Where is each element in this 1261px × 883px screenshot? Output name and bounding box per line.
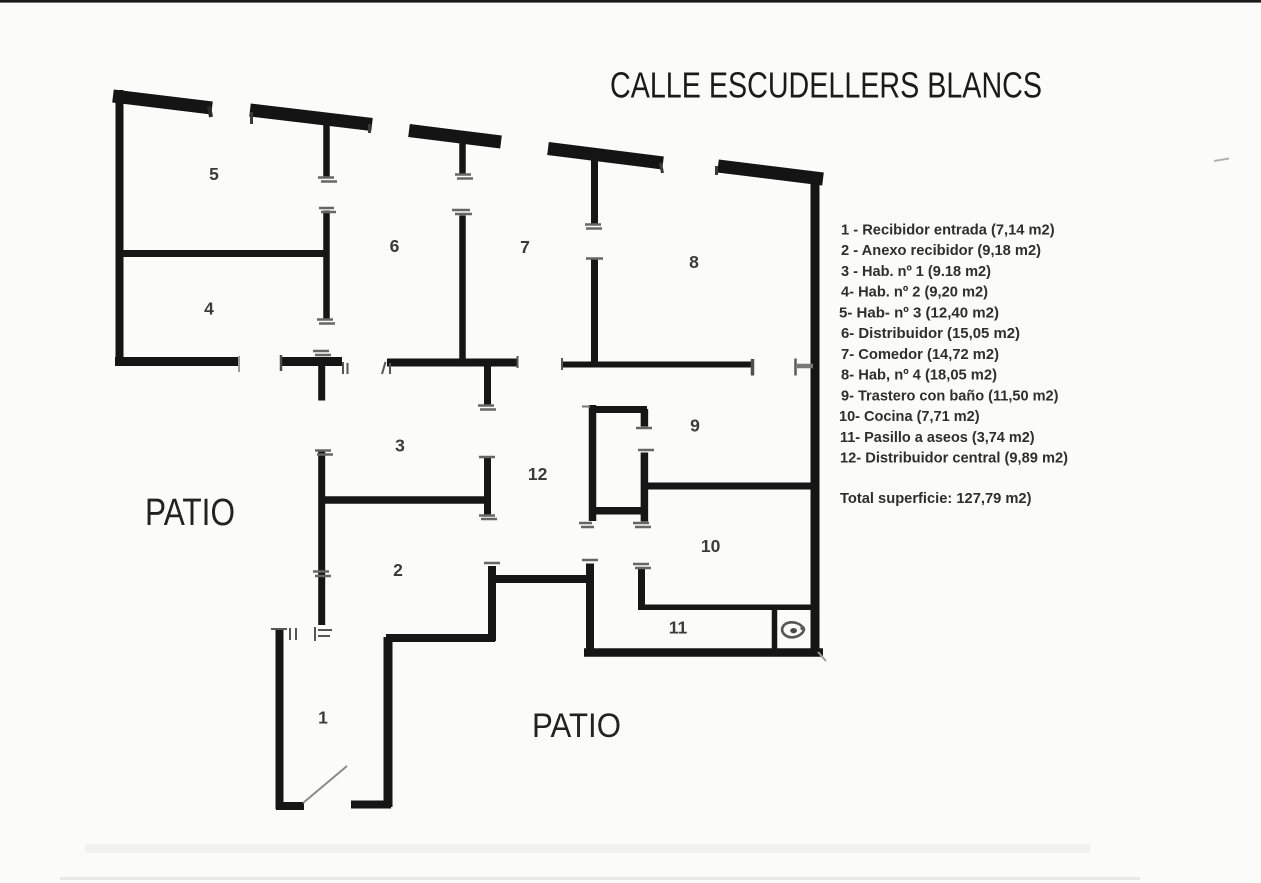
- svg-text:12- Distribuidor central (9,89: 12- Distribuidor central (9,89 m2): [840, 450, 1068, 467]
- svg-text:2 - Anexo recibidor (9,18 m2): 2 - Anexo recibidor (9,18 m2): [841, 242, 1041, 259]
- svg-text:1 - Recibidor entrada (7,14 m2: 1 - Recibidor entrada (7,14 m2): [841, 221, 1055, 238]
- svg-text:5: 5: [209, 164, 219, 184]
- svg-text:PATIO: PATIO: [532, 707, 621, 745]
- svg-text:6: 6: [390, 236, 400, 256]
- svg-text:CALLE ESCUDELLERS BLANCS: CALLE ESCUDELLERS BLANCS: [610, 65, 1042, 106]
- svg-text:4: 4: [204, 299, 214, 319]
- svg-text:11- Pasillo a aseos (3,74 m2): 11- Pasillo a aseos (3,74 m2): [840, 429, 1035, 446]
- svg-text:7: 7: [520, 237, 530, 257]
- svg-text:PATIO: PATIO: [145, 492, 235, 534]
- svg-text:9- Trastero con baño (11,50 m2: 9- Trastero con baño (11,50 m2): [841, 387, 1059, 404]
- svg-text:8: 8: [689, 252, 699, 272]
- svg-text:11: 11: [669, 618, 688, 638]
- svg-text:10- Cocina (7,71 m2): 10- Cocina (7,71 m2): [839, 408, 980, 425]
- svg-text:7- Comedor (14,72 m2): 7- Comedor (14,72 m2): [841, 346, 999, 363]
- svg-text:5- Hab- nº 3 (12,40 m2): 5- Hab- nº 3 (12,40 m2): [839, 304, 999, 321]
- svg-text:8- Hab, nº 4 (18,05 m2): 8- Hab, nº 4 (18,05 m2): [841, 367, 997, 384]
- svg-text:Total superficie: 127,79 m2): Total superficie: 127,79 m2): [840, 490, 1032, 507]
- svg-text:2: 2: [393, 560, 403, 580]
- svg-text:9: 9: [690, 416, 700, 436]
- svg-text:3: 3: [395, 436, 405, 456]
- svg-text:6- Distribuidor (15,05 m2): 6- Distribuidor (15,05 m2): [841, 325, 1020, 342]
- svg-text:10: 10: [701, 536, 721, 556]
- svg-text:12: 12: [528, 464, 548, 484]
- svg-text:4- Hab. nº 2 (9,20 m2): 4- Hab. nº 2 (9,20 m2): [841, 284, 988, 301]
- svg-text:3 - Hab. nº 1 (9.18 m2): 3 - Hab. nº 1 (9.18 m2): [841, 263, 991, 280]
- svg-text:1: 1: [318, 708, 328, 728]
